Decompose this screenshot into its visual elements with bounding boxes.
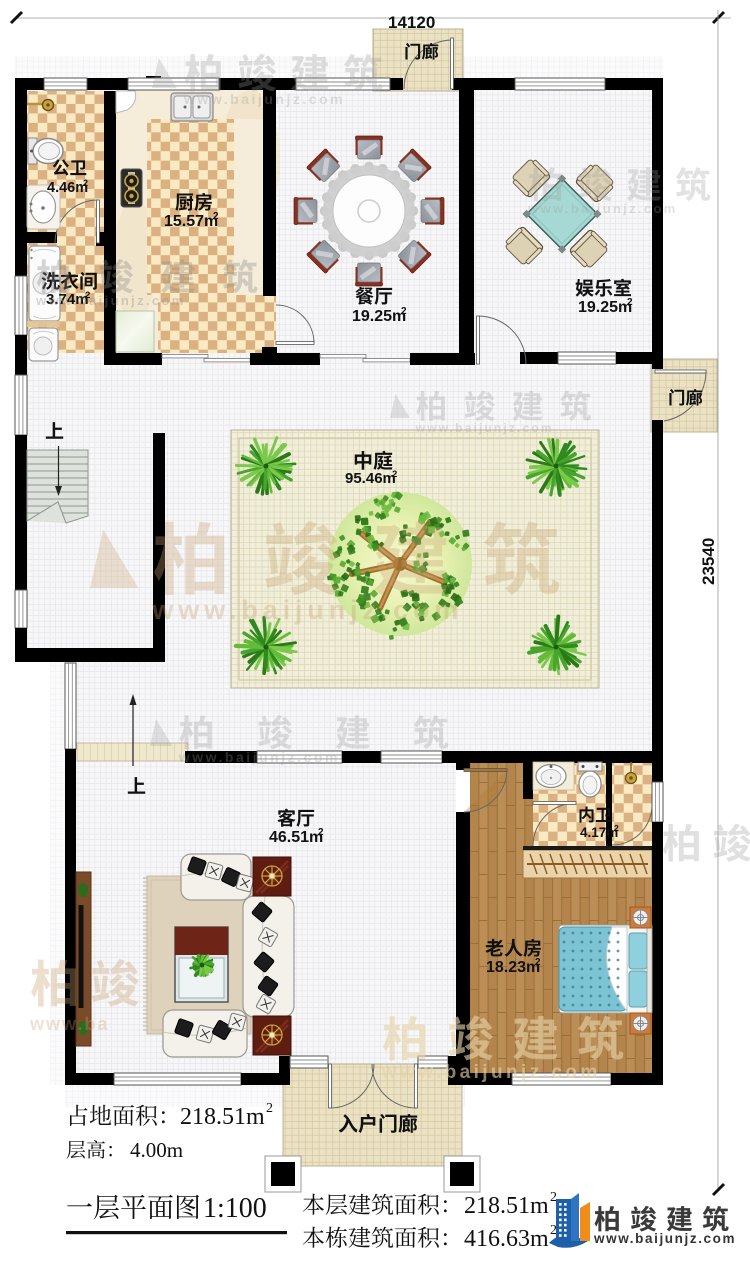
svg-text:2: 2	[535, 957, 541, 968]
svg-text:www.baijunjz.com: www.baijunjz.com	[593, 1231, 736, 1246]
svg-text:2: 2	[83, 178, 88, 188]
svg-text:218.51m: 218.51m	[180, 1104, 265, 1130]
svg-text:www.baijunjz.com: www.baijunjz.com	[178, 749, 340, 765]
svg-text:4.17m: 4.17m	[580, 825, 618, 840]
svg-text:416.63m: 416.63m	[464, 1226, 549, 1252]
svg-text:4.46m: 4.46m	[47, 180, 88, 196]
svg-text:14120: 14120	[388, 13, 435, 32]
svg-text:2: 2	[392, 469, 397, 480]
svg-text:www.baijunjz.com: www.baijunjz.com	[151, 595, 463, 625]
svg-text:2: 2	[213, 211, 219, 222]
svg-text:18.23m: 18.23m	[486, 959, 540, 976]
svg-text:www.baijunjz.com: www.baijunjz.com	[381, 1062, 601, 1083]
svg-text:www.baijunjz.com: www.baijunjz.com	[35, 293, 186, 308]
svg-text:46.51m: 46.51m	[269, 829, 323, 846]
svg-text:23540: 23540	[699, 538, 718, 585]
svg-text:2: 2	[550, 1223, 557, 1238]
svg-text:2: 2	[614, 823, 619, 833]
svg-text:218.51m: 218.51m	[464, 1193, 549, 1219]
svg-text:15.57m: 15.57m	[164, 213, 218, 230]
svg-text:2: 2	[318, 827, 324, 838]
svg-text:2: 2	[266, 1101, 273, 1116]
svg-text:95.46m: 95.46m	[345, 470, 396, 487]
svg-text:www.baijunjz.com: www.baijunjz.com	[415, 421, 554, 435]
svg-text:www.baijunjz.com: www.baijunjz.com	[527, 201, 678, 216]
svg-text:19.25m: 19.25m	[352, 308, 406, 325]
svg-text:2: 2	[401, 306, 407, 317]
svg-text:19.25m: 19.25m	[578, 299, 632, 316]
svg-text:2: 2	[627, 297, 633, 308]
svg-text:www.ba: www.ba	[29, 1014, 109, 1034]
svg-text:2: 2	[550, 1190, 557, 1205]
svg-text:1:100: 1:100	[203, 1193, 267, 1224]
svg-text:4.00m: 4.00m	[130, 1138, 183, 1162]
svg-text:www.baijunjz.com: www.baijunjz.com	[183, 91, 345, 107]
